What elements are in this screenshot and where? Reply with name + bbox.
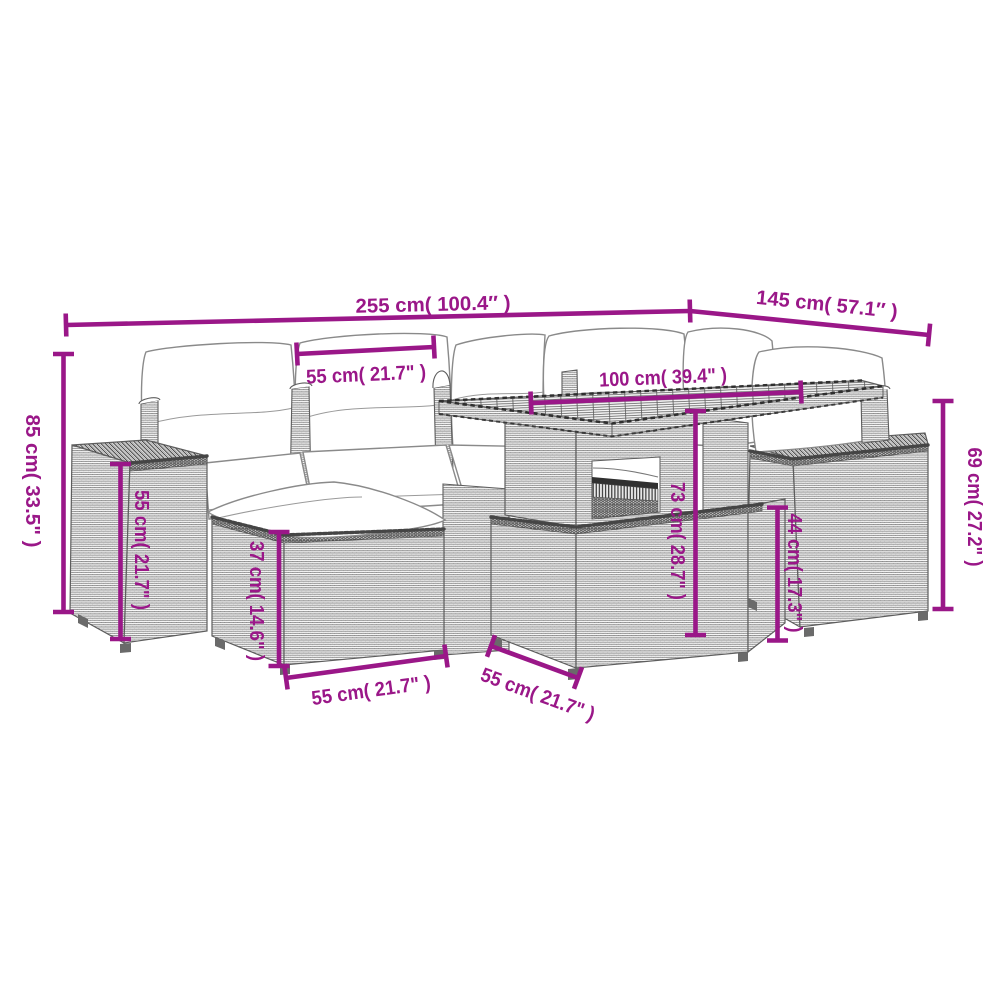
svg-text:37 cm( 14.6" ): 37 cm( 14.6" ) <box>245 541 267 661</box>
svg-text:255 cm( 100.4″ ): 255 cm( 100.4″ ) <box>355 292 510 318</box>
svg-text:85 cm( 33.5" ): 85 cm( 33.5" ) <box>21 415 43 548</box>
svg-text:73 cm( 28.7" ): 73 cm( 28.7" ) <box>666 482 688 600</box>
svg-text:44 cm( 17.3" ): 44 cm( 17.3" ) <box>783 514 805 633</box>
svg-text:69 cm( 27.2" ): 69 cm( 27.2" ) <box>963 448 985 567</box>
svg-text:55 cm( 21.7" ): 55 cm( 21.7" ) <box>130 490 152 610</box>
